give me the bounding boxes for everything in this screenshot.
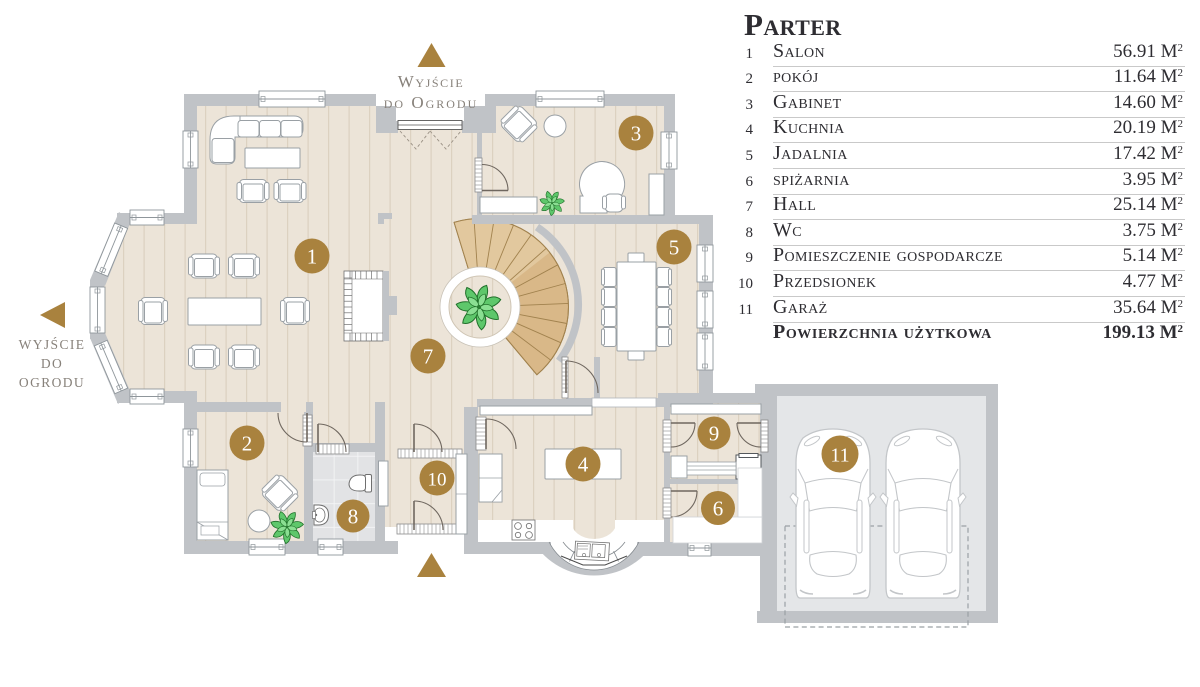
svg-text:5: 5 <box>669 236 680 260</box>
svg-text:6: 6 <box>713 497 724 521</box>
svg-text:1: 1 <box>307 245 318 269</box>
svg-text:do Ogrodu: do Ogrodu <box>384 93 479 112</box>
svg-text:2: 2 <box>242 432 253 456</box>
svg-text:10: 10 <box>428 470 447 491</box>
svg-text:11: 11 <box>830 445 849 467</box>
svg-text:8: 8 <box>348 505 359 529</box>
svg-text:WYJŚCIE: WYJŚCIE <box>19 337 86 352</box>
svg-text:DO: DO <box>41 356 63 371</box>
svg-text:3: 3 <box>631 122 642 146</box>
svg-text:4: 4 <box>578 453 589 477</box>
svg-text:9: 9 <box>709 422 720 446</box>
svg-text:7: 7 <box>423 345 434 369</box>
svg-text:Wyjście: Wyjście <box>398 72 465 91</box>
svg-text:OGRODU: OGRODU <box>19 375 85 390</box>
